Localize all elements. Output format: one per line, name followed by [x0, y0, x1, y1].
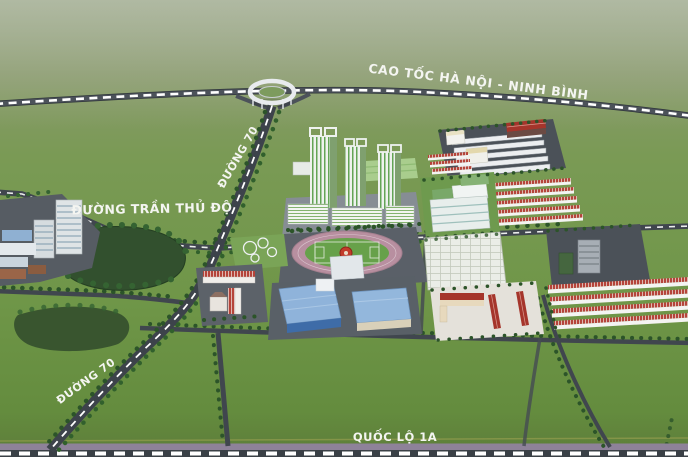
tower-1	[310, 128, 337, 208]
grandstand-roof	[330, 255, 364, 280]
masterplan-scene: CAO TỐC HÀ NỘI - NINH BÌNH ĐƯỜNG 70 ĐƯỜN…	[0, 0, 688, 457]
factory-blue-buildings	[268, 276, 422, 340]
office-campus	[420, 172, 500, 240]
tower-3	[378, 145, 401, 209]
label-quoc-lo-1a: QUỐC LỘ 1A	[353, 427, 437, 444]
tower-2	[345, 139, 366, 206]
school-complex	[196, 264, 268, 326]
townhouse-row	[428, 152, 472, 175]
quoc-lo-1a-road	[0, 444, 688, 457]
masterplan-rendering: CAO TỐC HÀ NỘI - NINH BÌNH ĐƯỜNG 70 ĐƯỜN…	[0, 0, 688, 457]
factory-building-2	[352, 288, 411, 331]
greenhouse-grid	[424, 232, 506, 290]
admin-complex	[430, 281, 544, 341]
commercial-block	[546, 224, 650, 287]
